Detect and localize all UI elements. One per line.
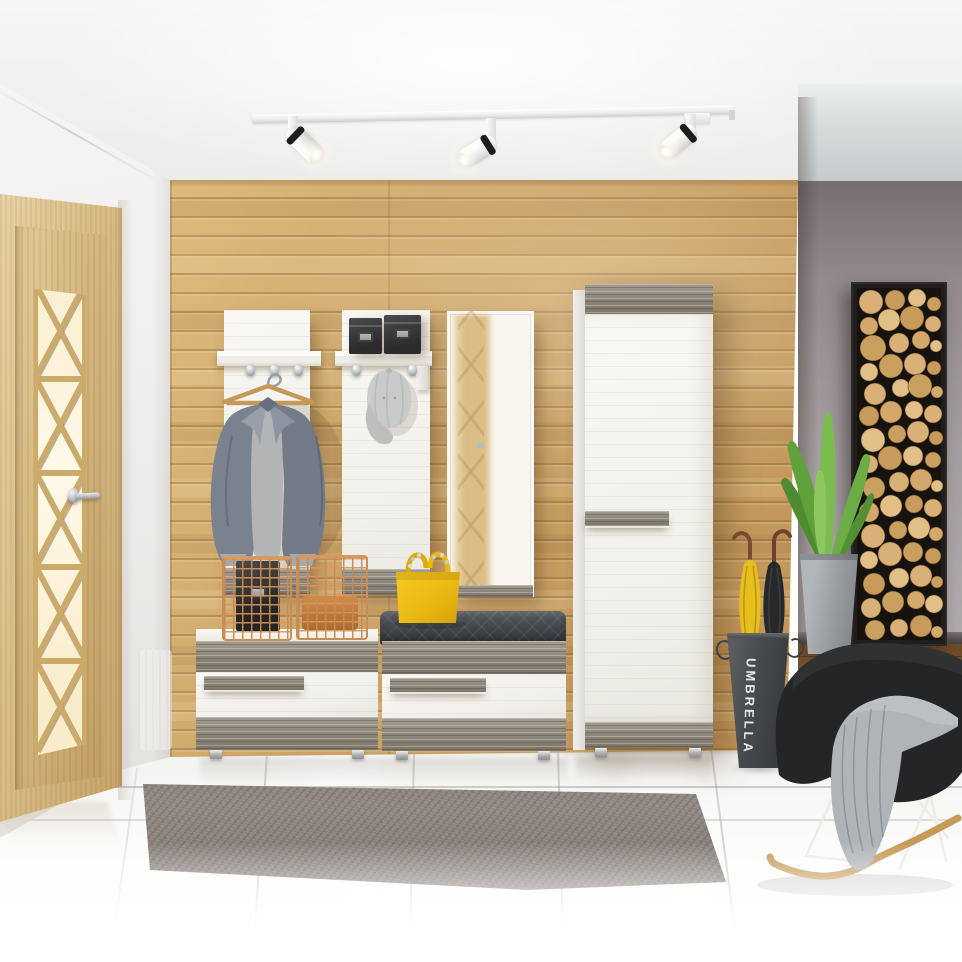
bench-foot bbox=[538, 751, 550, 760]
wardrobe-plinth bbox=[585, 722, 713, 748]
glazed-oak-door bbox=[0, 188, 122, 830]
box-label-plate bbox=[395, 329, 410, 339]
white-radiator bbox=[138, 650, 172, 750]
tall-wardrobe bbox=[573, 284, 713, 762]
door-glass-panel bbox=[34, 284, 86, 760]
living-area-wall-shadow bbox=[798, 181, 962, 281]
grey-blazer-on-hanger bbox=[198, 366, 350, 574]
wardrobe-handle bbox=[585, 511, 669, 526]
shoe-bench bbox=[380, 611, 566, 759]
wardrobe-foot bbox=[689, 748, 701, 757]
track-spotlight-1 bbox=[270, 116, 316, 182]
grey-cap bbox=[358, 362, 420, 452]
storage-box bbox=[384, 315, 421, 354]
cabinet-grey-band bbox=[196, 717, 378, 750]
track-endcap bbox=[729, 110, 735, 120]
copper-wire-basket bbox=[222, 556, 292, 641]
hallway-interior-render: UMBRELLA bbox=[0, 0, 962, 962]
floor-reflection bbox=[200, 758, 568, 784]
box-label-plate bbox=[358, 332, 373, 342]
track-spotlight-3 bbox=[668, 114, 714, 180]
bench-foot bbox=[396, 751, 408, 760]
bench-grey-band bbox=[382, 641, 566, 674]
cabinet-grey-band bbox=[196, 641, 378, 672]
potted-plant bbox=[778, 402, 874, 567]
cabinet-handle bbox=[204, 676, 304, 690]
cabinet-foot bbox=[210, 750, 222, 759]
bench-grey-band bbox=[382, 718, 566, 751]
storage-box bbox=[349, 318, 382, 354]
cabinet-foot bbox=[352, 750, 364, 759]
door-shadow bbox=[118, 200, 134, 800]
wardrobe-foot bbox=[595, 748, 607, 757]
bench-handle bbox=[390, 678, 486, 692]
living-area-ceiling bbox=[798, 84, 962, 181]
track-spotlight-2 bbox=[468, 118, 514, 184]
mirror-reflected-handle bbox=[477, 443, 484, 448]
foreground-light-fade bbox=[0, 842, 962, 962]
door-lattice bbox=[34, 284, 86, 760]
door-handle-lever bbox=[76, 492, 100, 499]
coat-panel-left-shelf bbox=[217, 351, 321, 366]
shoe-cabinet-left bbox=[196, 629, 378, 759]
copper-wire-basket bbox=[296, 555, 368, 640]
wardrobe-side bbox=[573, 290, 585, 750]
wardrobe-top-band bbox=[585, 284, 713, 314]
yellow-handbag bbox=[386, 542, 470, 628]
